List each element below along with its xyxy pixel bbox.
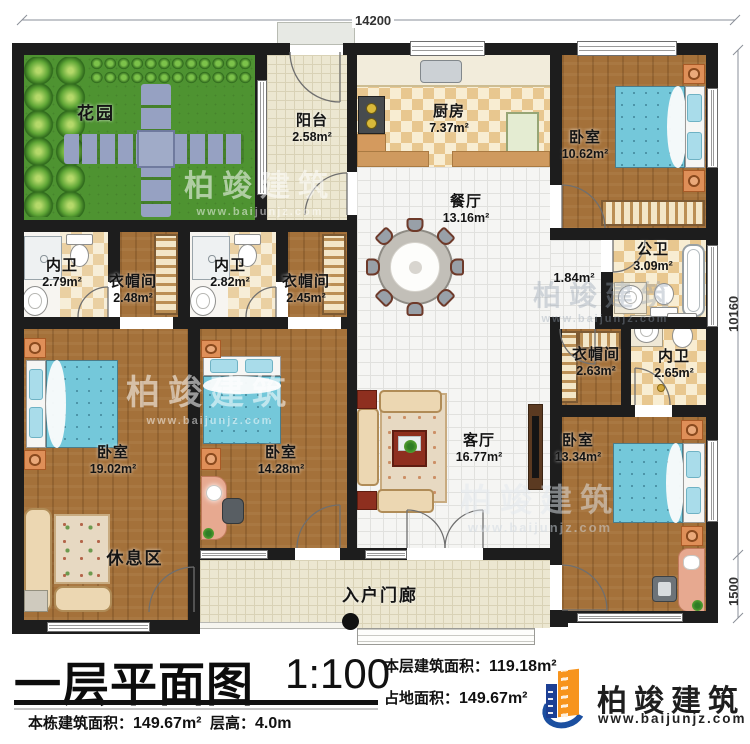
room-label-garden: 花园 (77, 104, 115, 123)
room-label-cloak-r: 衣帽间2.63m² (572, 347, 620, 378)
dimension-right-upper-label: 10160 (726, 296, 741, 332)
room-label-living: 客厅16.77m² (456, 433, 503, 464)
room-label-porch: 入户门廊 (342, 586, 418, 605)
room-label-bedroom-tr: 卧室10.62m² (562, 130, 609, 161)
room-label-bedroom-bl: 卧室19.02m² (90, 445, 137, 476)
room-label-hall: 1.84m² (553, 271, 594, 286)
dimension-right-lower-label: 1500 (726, 577, 741, 606)
room-label-bedroom-br: 卧室13.34m² (555, 433, 602, 464)
room-label-dining: 餐厅13.16m² (443, 194, 490, 225)
room-label-cloak-l2: 衣帽间2.45m² (282, 274, 330, 305)
room-label-rest-area: 休息区 (107, 549, 164, 568)
room-label-bath-l1: 内卫2.79m² (42, 258, 82, 289)
floor-plan-page: 14200 10160 1500 花园 阳台2.58m² 厨房7.37m² 卧室… (0, 0, 750, 744)
room-label-bath-r: 内卫2.65m² (654, 349, 694, 380)
dimension-top-label: 14200 (352, 13, 394, 28)
room-label-bath-l2: 内卫2.82m² (210, 258, 250, 289)
room-label-bedroom-bm: 卧室14.28m² (258, 445, 305, 476)
room-label-kitchen: 厨房7.37m² (429, 104, 469, 135)
room-label-balcony: 阳台2.58m² (292, 113, 332, 144)
room-label-cloak-l1: 衣帽间2.48m² (109, 274, 157, 305)
room-label-public-bath: 公卫3.09m² (633, 242, 673, 273)
